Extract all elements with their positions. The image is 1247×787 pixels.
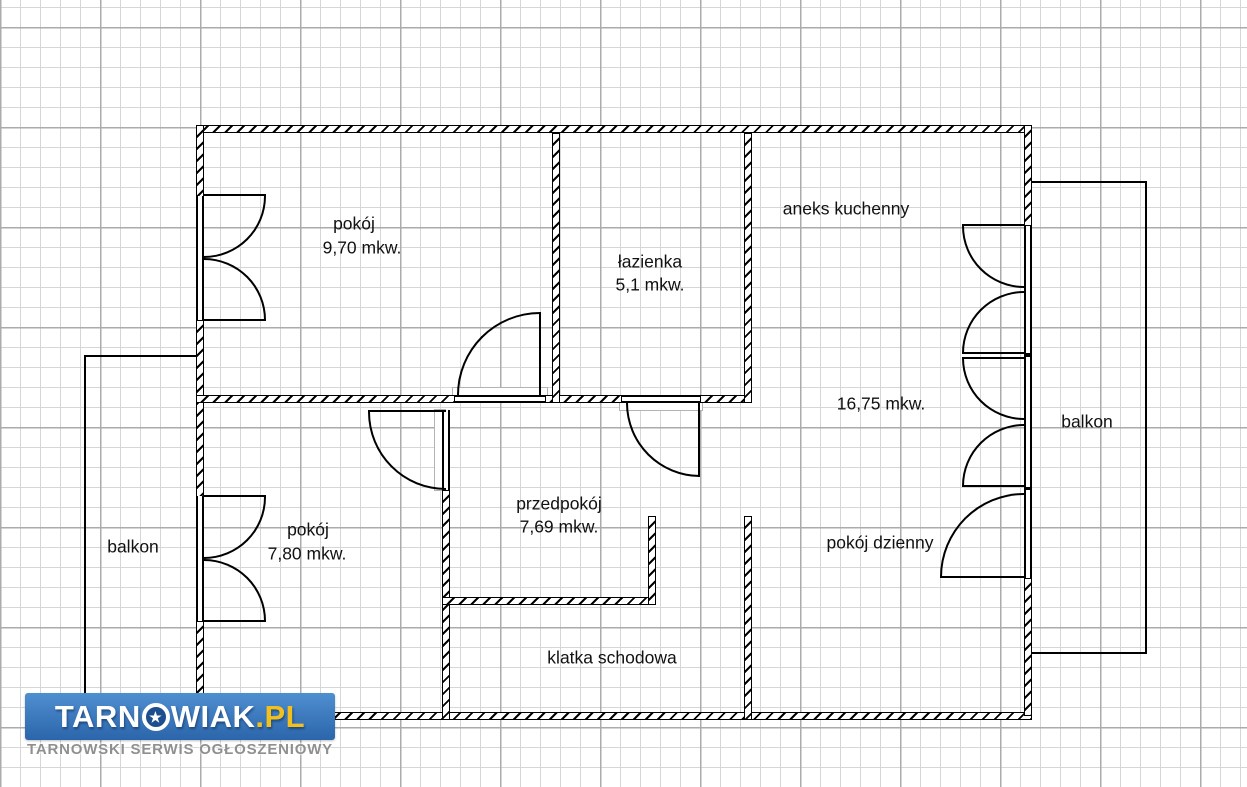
room-label-przedpokoj-area: 7,69 mkw. xyxy=(520,517,599,538)
logo-brand-suffix: WIAK xyxy=(171,699,256,735)
wall-bathroom-bottom-left xyxy=(559,395,622,403)
logo-brand-tld: .PL xyxy=(255,699,305,735)
balcony-door-opening-3 xyxy=(1024,490,1032,578)
door-swing-arc xyxy=(457,312,540,395)
room-label-pokoj-bottom-name: pokój xyxy=(287,520,329,541)
room-label-salon-area: 16,75 mkw. xyxy=(837,394,926,415)
door-opening-bathroom xyxy=(622,395,700,403)
wall-right-segment xyxy=(1024,125,1032,226)
wall-bathroom-left xyxy=(552,133,560,403)
door-swing-arc xyxy=(962,226,1024,288)
door-divider xyxy=(1024,487,1032,490)
door-swing-arc xyxy=(626,403,700,477)
floor-plan-canvas: pokój 9,70 mkw. łazienka 5,1 mkw. aneks … xyxy=(0,0,1247,787)
tarnowiak-logo-text: TARN★WIAK.PL xyxy=(55,699,305,735)
door-swing-arc xyxy=(940,493,1024,577)
room-label-lazienka-area: 5,1 mkw. xyxy=(615,275,684,296)
room-label-balkon-left: balkon xyxy=(107,537,159,558)
balcony-door-opening-1 xyxy=(1024,226,1032,353)
room-label-przedpokoj-name: przedpokój xyxy=(516,494,602,515)
room-label-pokoj-bottom-area: 7,80 mkw. xyxy=(268,544,347,565)
wall-left-segment xyxy=(196,320,204,497)
door-swing-arc xyxy=(204,196,266,258)
wall-horizontal-room1 xyxy=(196,395,455,403)
wall-hallway-left xyxy=(442,490,450,720)
door-swing-arc xyxy=(204,258,266,320)
room-label-balkon-right: balkon xyxy=(1061,412,1113,433)
door-swing-arc xyxy=(204,559,266,621)
balcony-door-opening-2 xyxy=(1024,357,1032,487)
wall-staircase-stub xyxy=(648,516,656,605)
door-swing-arc xyxy=(962,291,1024,353)
door-swing-arc xyxy=(962,358,1024,420)
wall-left-segment xyxy=(196,125,204,197)
tarnowiak-tagline: TARNOWSKI SERWIS OGŁOSZENIOWY xyxy=(25,741,335,758)
room-label-pokoj-top-name: pokój xyxy=(333,214,375,235)
door-swing-arc xyxy=(204,497,266,559)
wall-right-segment xyxy=(1024,578,1032,716)
door-swing-arc xyxy=(962,424,1024,486)
room-label-pokoj-top-area: 9,70 mkw. xyxy=(323,238,402,259)
balcony-left-outline xyxy=(84,355,202,715)
room-label-lazienka-name: łazienka xyxy=(618,252,682,273)
wall-horizontal-stub xyxy=(545,395,553,403)
star-icon: ★ xyxy=(142,703,170,731)
tarnowiak-logo: TARN★WIAK.PL xyxy=(25,693,335,740)
room-label-klatka-schodowa: klatka schodowa xyxy=(547,648,676,669)
wall-top xyxy=(196,125,1032,133)
window-opening-room2 xyxy=(196,496,204,621)
wall-hallway-bottom xyxy=(442,597,656,605)
door-divider xyxy=(1024,353,1032,357)
logo-brand-prefix: TARN xyxy=(55,699,141,735)
wall-bathroom-bottom-right xyxy=(700,395,745,403)
room-label-pokoj-dzienny: pokój dzienny xyxy=(826,533,933,554)
window-opening-room1 xyxy=(196,196,204,320)
wall-staircase-right xyxy=(744,516,752,720)
wall-bathroom-right xyxy=(744,133,752,403)
room-label-aneks-kuchenny: aneks kuchenny xyxy=(783,199,909,220)
door-swing-arc xyxy=(368,412,446,490)
door-opening-room1 xyxy=(455,395,545,403)
